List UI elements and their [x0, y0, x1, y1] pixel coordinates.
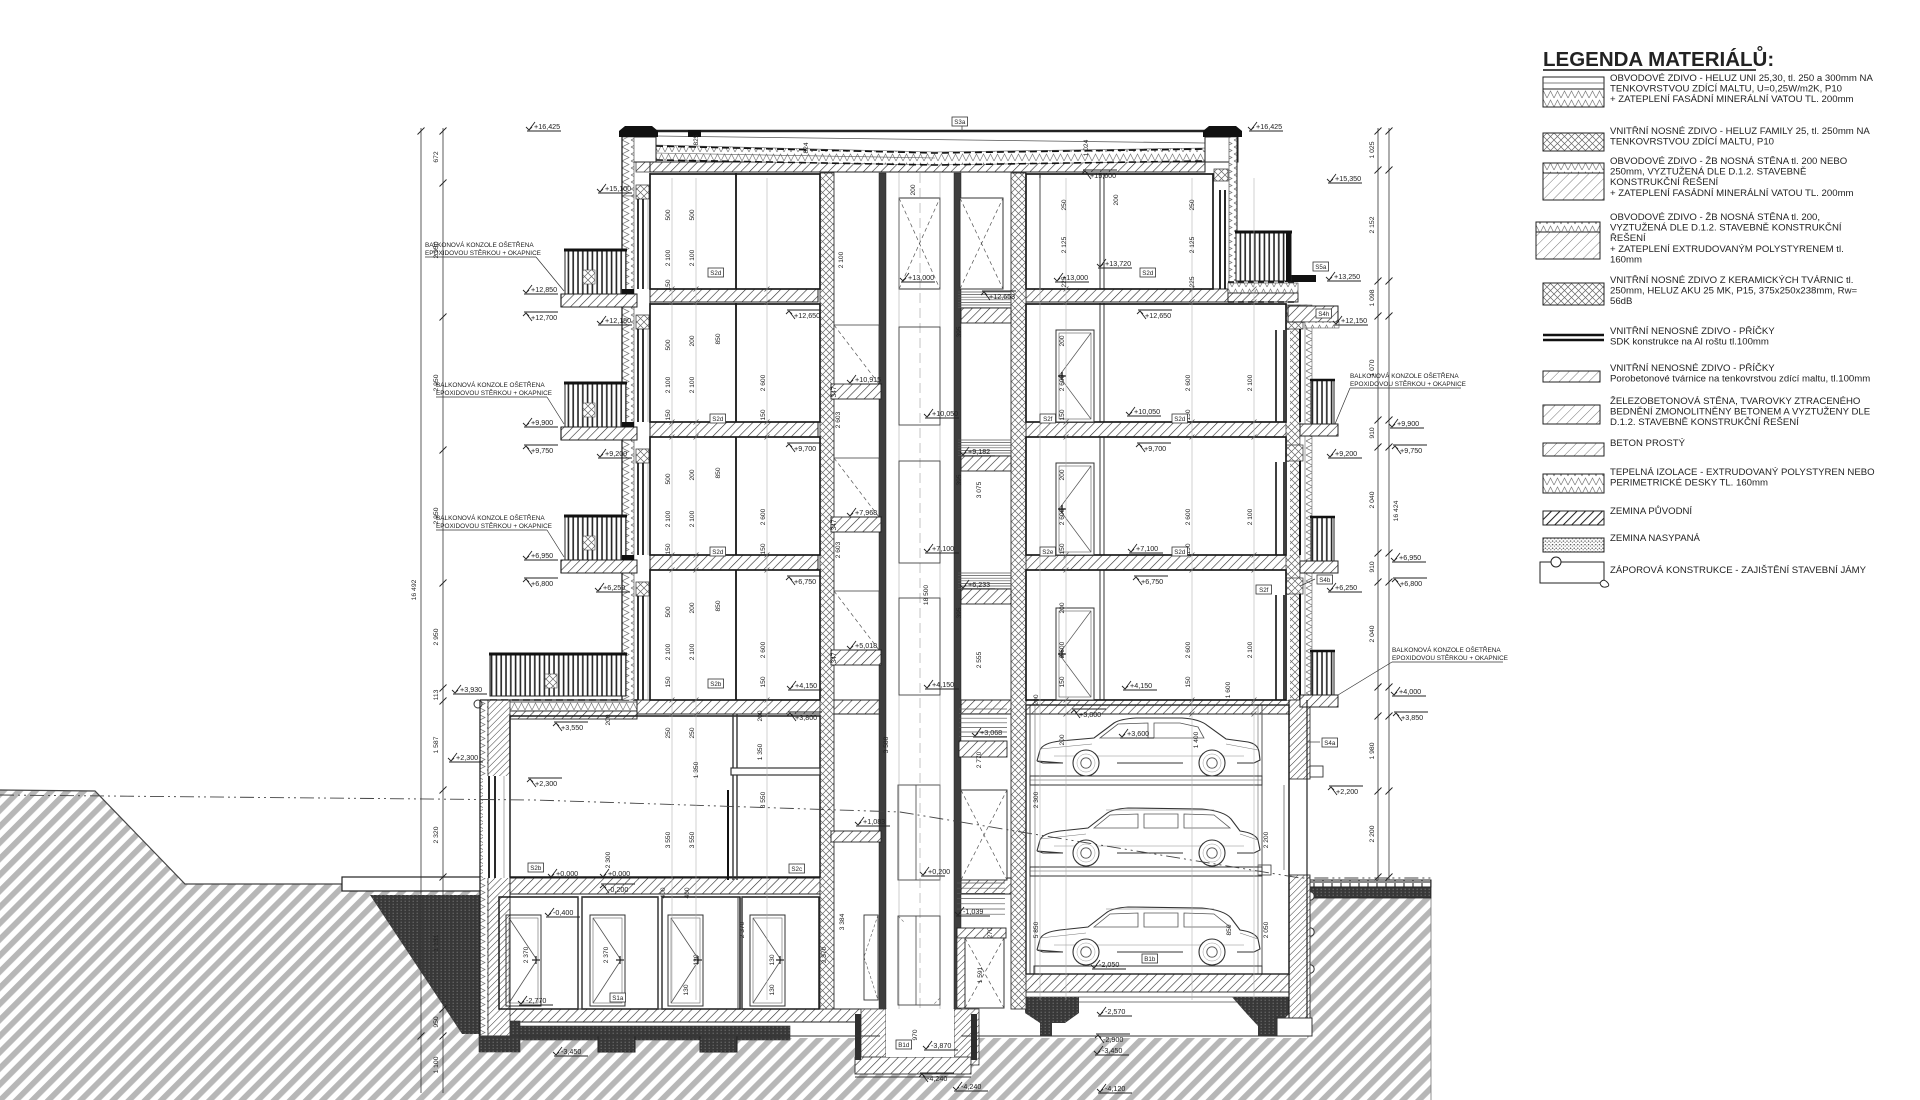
svg-text:400: 400	[660, 887, 667, 898]
svg-text:1 098: 1 098	[1369, 289, 1376, 306]
svg-text:B1b: B1b	[1144, 956, 1156, 963]
svg-text:-0,400: -0,400	[553, 908, 573, 917]
svg-text:850: 850	[715, 467, 722, 478]
svg-text:+6,950: +6,950	[531, 551, 553, 560]
svg-text:+6,250: +6,250	[603, 583, 625, 592]
svg-text:VNITŘNÍ NENOSNÉ ZDIVO - PŘÍČKY: VNITŘNÍ NENOSNÉ ZDIVO - PŘÍČKY	[1610, 326, 1775, 337]
svg-text:2 100: 2 100	[665, 249, 672, 266]
svg-text:+12,150: +12,150	[1341, 316, 1367, 325]
svg-text:200: 200	[910, 184, 917, 195]
svg-text:+4,150: +4,150	[932, 680, 954, 689]
svg-text:S4h: S4h	[1318, 311, 1330, 318]
svg-text:2 370: 2 370	[739, 921, 746, 938]
svg-text:EPOXIDOVOU STĚRKOU + OKAPNICE: EPOXIDOVOU STĚRKOU + OKAPNICE	[1392, 653, 1508, 662]
svg-text:2 300: 2 300	[1033, 791, 1040, 808]
svg-text:S2c: S2c	[791, 866, 802, 873]
svg-text:+15,350: +15,350	[1335, 174, 1361, 183]
svg-text:+6,233: +6,233	[968, 580, 990, 589]
svg-text:BALKONOVÁ KONZOLE OŠETŘENA: BALKONOVÁ KONZOLE OŠETŘENA	[1350, 371, 1459, 380]
svg-text:200: 200	[689, 602, 696, 613]
svg-text:2 100: 2 100	[689, 510, 696, 527]
svg-text:270: 270	[987, 927, 994, 938]
svg-text:3 550: 3 550	[665, 831, 672, 848]
svg-text:S2d: S2d	[712, 549, 724, 556]
svg-text:+0,200: +0,200	[928, 867, 950, 876]
svg-text:+3,930: +3,930	[460, 685, 482, 694]
svg-text:OBVODOVÉ ZDIVO - ŽB NOSNÁ STĚN: OBVODOVÉ ZDIVO - ŽB NOSNÁ STĚNA tl. 200,	[1610, 212, 1820, 223]
svg-text:395: 395	[956, 474, 963, 485]
svg-text:OBVODOVÉ ZDIVO - HELUZ UNI 25,: OBVODOVÉ ZDIVO - HELUZ UNI 25,30, tl. 25…	[1610, 73, 1873, 84]
svg-text:+12,850: +12,850	[531, 285, 557, 294]
svg-text:+ ZATEPLENÍ FASÁDNÍ MINERÁLNÍ: + ZATEPLENÍ FASÁDNÍ MINERÁLNÍ VATOU TL. …	[1610, 188, 1854, 199]
svg-text:160mm: 160mm	[1610, 254, 1642, 265]
svg-text:500: 500	[665, 606, 672, 617]
svg-text:850: 850	[1226, 924, 1233, 935]
svg-text:2 600: 2 600	[1059, 508, 1066, 525]
svg-text:850: 850	[715, 600, 722, 611]
svg-text:BEDNĚNÍ ZMONOLITNĚNY BETONEM A: BEDNĚNÍ ZMONOLITNĚNY BETONEM A VYZTUŽENY…	[1610, 407, 1870, 418]
svg-text:ŘEŠENÍ: ŘEŠENÍ	[1610, 233, 1646, 244]
svg-text:S2d: S2d	[1174, 416, 1186, 423]
svg-text:D.1.2. STAVEBNĚ KONSTRUKČNÍ ŘE: D.1.2. STAVEBNĚ KONSTRUKČNÍ ŘEŠENÍ	[1610, 417, 1799, 428]
svg-text:+9,750: +9,750	[1400, 446, 1422, 455]
svg-text:2 600: 2 600	[760, 641, 767, 658]
svg-text:S4b: S4b	[1319, 577, 1331, 584]
svg-text:3 550: 3 550	[760, 791, 767, 808]
svg-text:+12,653: +12,653	[989, 292, 1015, 301]
svg-text:+13,000: +13,000	[1062, 273, 1088, 282]
svg-text:+15,100: +15,100	[605, 184, 631, 193]
svg-text:+13,720: +13,720	[1105, 259, 1131, 268]
svg-text:+5,018: +5,018	[855, 641, 877, 650]
svg-text:-0,200: -0,200	[608, 885, 628, 894]
svg-text:+16,425: +16,425	[1256, 122, 1282, 131]
svg-text:2 770: 2 770	[976, 751, 983, 768]
svg-text:LEGENDA MATERIÁLŮ:: LEGENDA MATERIÁLŮ:	[1543, 45, 1774, 71]
svg-text:BALKONOVÁ KONZOLE OŠETŘENA: BALKONOVÁ KONZOLE OŠETŘENA	[436, 380, 545, 389]
svg-text:3 075: 3 075	[976, 481, 983, 498]
svg-text:150: 150	[1059, 676, 1066, 687]
svg-text:2 125: 2 125	[1189, 236, 1196, 253]
svg-text:200: 200	[1033, 694, 1040, 705]
svg-text:+1,083: +1,083	[863, 817, 885, 826]
svg-text:2 200: 2 200	[1263, 831, 1270, 848]
svg-text:+6,750: +6,750	[794, 577, 816, 586]
svg-text:EPOXIDOVOU STĚRKOU + OKAPNICE: EPOXIDOVOU STĚRKOU + OKAPNICE	[425, 248, 541, 257]
svg-text:3 384: 3 384	[839, 913, 846, 930]
svg-text:2 300: 2 300	[605, 851, 612, 868]
svg-text:KONSTRUKČNÍ ŘEŠENÍ: KONSTRUKČNÍ ŘEŠENÍ	[1610, 177, 1719, 188]
svg-text:+13,000: +13,000	[908, 273, 934, 282]
svg-text:150: 150	[665, 676, 672, 687]
svg-text:2 600: 2 600	[760, 374, 767, 391]
svg-text:TEPELNÁ IZOLACE - EXTRUDOVANÝ: TEPELNÁ IZOLACE - EXTRUDOVANÝ POLYSTYREN…	[1610, 467, 1875, 478]
svg-text:200: 200	[1113, 194, 1120, 205]
svg-text:S4a: S4a	[1324, 740, 1336, 747]
svg-text:113: 113	[433, 689, 440, 700]
svg-text:2 950: 2 950	[433, 628, 440, 645]
svg-text:+3,068: +3,068	[980, 728, 1002, 737]
svg-text:+12,700: +12,700	[531, 313, 557, 322]
svg-text:150: 150	[1059, 543, 1066, 554]
svg-text:500: 500	[665, 209, 672, 220]
svg-text:250: 250	[689, 727, 696, 738]
svg-text:200: 200	[689, 469, 696, 480]
svg-text:2 100: 2 100	[1247, 374, 1254, 391]
svg-text:ZEMINA PŮVODNÍ: ZEMINA PŮVODNÍ	[1610, 505, 1692, 517]
svg-text:-4,240: -4,240	[927, 1074, 947, 1083]
svg-text:1 980: 1 980	[1369, 742, 1376, 759]
svg-text:200: 200	[1059, 734, 1066, 745]
svg-text:VNITŘNÍ NOSNÉ ZDIVO - HELUZ FA: VNITŘNÍ NOSNÉ ZDIVO - HELUZ FAMILY 25, t…	[1610, 126, 1870, 137]
svg-text:+7,100: +7,100	[1136, 544, 1158, 553]
svg-text:130: 130	[769, 954, 776, 965]
svg-text:S5a: S5a	[1315, 264, 1327, 271]
svg-text:2 600: 2 600	[1185, 641, 1192, 658]
svg-text:150: 150	[1059, 409, 1066, 420]
svg-text:1 350: 1 350	[757, 743, 764, 760]
svg-text:200: 200	[1059, 602, 1066, 613]
svg-text:2 100: 2 100	[665, 376, 672, 393]
svg-text:BALKONOVÁ KONZOLE OŠETŘENA: BALKONOVÁ KONZOLE OŠETŘENA	[425, 240, 534, 249]
svg-text:2 603: 2 603	[835, 411, 842, 428]
svg-text:+10,915: +10,915	[855, 375, 881, 384]
svg-text:+ ZATEPLENÍ EXTRUDOVANÝM POLYS: + ZATEPLENÍ EXTRUDOVANÝM POLYSTYRENEM tl…	[1610, 244, 1844, 255]
svg-text:+3,850: +3,850	[1401, 713, 1423, 722]
svg-text:1 591: 1 591	[977, 966, 984, 983]
svg-text:EPOXIDOVOU STĚRKOU + OKAPNICE: EPOXIDOVOU STĚRKOU + OKAPNICE	[1350, 379, 1466, 388]
svg-text:2 370: 2 370	[603, 946, 610, 963]
svg-text:S2d: S2d	[1174, 549, 1186, 556]
svg-text:+6,950: +6,950	[1399, 553, 1421, 562]
svg-text:BALKONOVÁ KONZOLE OŠETŘENA: BALKONOVÁ KONZOLE OŠETŘENA	[436, 513, 545, 522]
svg-text:+0,000: +0,000	[608, 869, 630, 878]
svg-text:+10,050: +10,050	[932, 409, 958, 418]
svg-text:1 131: 1 131	[433, 934, 440, 951]
svg-text:S2d: S2d	[1142, 270, 1154, 277]
svg-text:3 588: 3 588	[883, 736, 890, 753]
svg-text:400: 400	[684, 887, 691, 898]
svg-text:+9,700: +9,700	[1144, 444, 1166, 453]
svg-text:+3,800: +3,800	[1079, 710, 1101, 719]
svg-text:+ ZATEPLENÍ FASÁDNÍ MINERÁLNÍ: + ZATEPLENÍ FASÁDNÍ MINERÁLNÍ VATOU TL. …	[1610, 94, 1854, 105]
svg-text:850: 850	[715, 333, 722, 344]
svg-text:+6,800: +6,800	[1400, 579, 1422, 588]
svg-text:2 555: 2 555	[976, 651, 983, 668]
svg-text:2 040: 2 040	[1369, 491, 1376, 508]
svg-text:150: 150	[665, 543, 672, 554]
svg-text:500: 500	[665, 339, 672, 350]
svg-text:S2d: S2d	[712, 416, 724, 423]
svg-text:250mm, HELUZ AKU 25 MK, P15, 3: 250mm, HELUZ AKU 25 MK, P15, 375x250x238…	[1610, 286, 1858, 297]
svg-text:BALKONOVÁ KONZOLE OŠETŘENA: BALKONOVÁ KONZOLE OŠETŘENA	[1392, 645, 1501, 654]
svg-text:-2,900: -2,900	[1103, 1035, 1123, 1044]
svg-text:500: 500	[665, 473, 672, 484]
svg-text:2 320: 2 320	[433, 826, 440, 843]
svg-text:EPOXIDOVOU STĚRKOU + OKAPNICE: EPOXIDOVOU STĚRKOU + OKAPNICE	[436, 521, 552, 530]
svg-text:395: 395	[956, 326, 963, 337]
svg-text:1 600: 1 600	[1225, 681, 1232, 698]
svg-text:2 100: 2 100	[1247, 508, 1254, 525]
svg-text:130: 130	[693, 954, 700, 965]
svg-text:56dB: 56dB	[1610, 296, 1632, 307]
svg-text:150: 150	[760, 543, 767, 554]
svg-text:+9,182: +9,182	[968, 447, 990, 456]
svg-text:+7,968: +7,968	[855, 508, 877, 517]
svg-text:+6,250: +6,250	[1335, 583, 1357, 592]
svg-text:ZEMINA NASYPANÁ: ZEMINA NASYPANÁ	[1610, 533, 1701, 544]
svg-text:910: 910	[1369, 427, 1376, 439]
svg-text:250mm, VYZTUŽENÁ DLE D.1.2. ST: 250mm, VYZTUŽENÁ DLE D.1.2. STAVEBNĚ	[1610, 167, 1806, 178]
svg-text:S2f: S2f	[1259, 587, 1269, 594]
svg-text:BETON PROSTÝ: BETON PROSTÝ	[1610, 438, 1686, 449]
svg-text:+6,800: +6,800	[531, 579, 553, 588]
svg-text:+2,300: +2,300	[456, 753, 478, 762]
svg-text:VNITŘNÍ NENOSNÉ ZDIVO - PŘÍČKY: VNITŘNÍ NENOSNÉ ZDIVO - PŘÍČKY	[1610, 363, 1775, 374]
svg-text:-1,039: -1,039	[963, 907, 983, 916]
svg-text:SDK konstrukce na Al roštu tl.: SDK konstrukce na Al roštu tl.100mm	[1610, 337, 1769, 348]
svg-text:2 600: 2 600	[1185, 374, 1192, 391]
svg-text:950: 950	[433, 1016, 440, 1028]
svg-text:2 600: 2 600	[1059, 641, 1066, 658]
svg-text:-2,570: -2,570	[1105, 1007, 1125, 1016]
svg-text:-3,450: -3,450	[1102, 1046, 1122, 1055]
svg-text:347: 347	[831, 386, 838, 397]
svg-text:225: 225	[1189, 276, 1196, 287]
svg-text:+2,300: +2,300	[535, 779, 557, 788]
svg-text:OBVODOVÉ ZDIVO - ŽB NOSNÁ STĚN: OBVODOVÉ ZDIVO - ŽB NOSNÁ STĚNA tl. 200 …	[1610, 156, 1847, 167]
svg-text:150: 150	[760, 676, 767, 687]
svg-text:395: 395	[956, 607, 963, 618]
svg-text:130: 130	[683, 984, 690, 995]
svg-text:200: 200	[1059, 335, 1066, 346]
svg-text:250: 250	[665, 727, 672, 738]
svg-text:200: 200	[1059, 469, 1066, 480]
svg-text:200: 200	[605, 714, 612, 725]
svg-text:-4,240: -4,240	[961, 1082, 981, 1091]
svg-text:1 587: 1 587	[433, 736, 440, 753]
svg-text:2 040: 2 040	[1369, 625, 1376, 642]
svg-text:825: 825	[693, 134, 700, 145]
svg-text:+9,900: +9,900	[531, 418, 553, 427]
svg-text:1 350: 1 350	[693, 761, 700, 778]
svg-text:2 600: 2 600	[760, 508, 767, 525]
svg-text:970: 970	[912, 1029, 919, 1040]
svg-text:2 125: 2 125	[1061, 236, 1068, 253]
svg-text:+3,550: +3,550	[561, 723, 583, 732]
svg-text:TENKOVRSTVOU ZDÍCÍ MALTU, U=0,: TENKOVRSTVOU ZDÍCÍ MALTU, U=0,25W/m2K, P…	[1610, 84, 1842, 95]
svg-text:2 603: 2 603	[835, 541, 842, 558]
svg-text:+3,800: +3,800	[795, 713, 817, 722]
svg-text:-2,770: -2,770	[526, 996, 546, 1005]
svg-text:500: 500	[689, 209, 696, 220]
svg-text:16 492: 16 492	[411, 579, 418, 600]
svg-text:+10,050: +10,050	[1134, 407, 1160, 416]
svg-text:-2,050: -2,050	[1099, 960, 1119, 969]
svg-text:+12,650: +12,650	[1145, 311, 1171, 320]
svg-text:+9,200: +9,200	[605, 449, 627, 458]
svg-text:+12,150: +12,150	[605, 316, 631, 325]
svg-text:200: 200	[757, 710, 764, 721]
svg-text:1 025: 1 025	[1369, 141, 1376, 158]
svg-text:+9,900: +9,900	[1397, 419, 1419, 428]
svg-text:18 500: 18 500	[923, 585, 930, 606]
svg-text:250: 250	[1061, 199, 1068, 210]
svg-text:+7,100: +7,100	[932, 544, 954, 553]
svg-text:TENKOVRSTVOU ZDÍCÍ MALTU, P10: TENKOVRSTVOU ZDÍCÍ MALTU, P10	[1610, 137, 1774, 148]
svg-text:PERIMETRICKÉ DESKY TL. 160mm: PERIMETRICKÉ DESKY TL. 160mm	[1610, 478, 1768, 489]
svg-text:+2,200: +2,200	[1336, 787, 1358, 796]
svg-text:ŽELEZOBETONOVÁ STĚNA, TVAROVKY: ŽELEZOBETONOVÁ STĚNA, TVAROVKY ZTRACENÉH…	[1610, 396, 1860, 407]
svg-text:672: 672	[433, 151, 440, 163]
svg-text:+9,700: +9,700	[794, 444, 816, 453]
svg-text:+9,750: +9,750	[531, 446, 553, 455]
svg-text:+12,650: +12,650	[794, 311, 820, 320]
svg-text:2 100: 2 100	[838, 251, 845, 268]
svg-text:+3,600: +3,600	[1127, 729, 1149, 738]
svg-text:S2f: S2f	[1043, 416, 1053, 423]
svg-text:EPOXIDOVOU STĚRKOU + OKAPNICE: EPOXIDOVOU STĚRKOU + OKAPNICE	[436, 388, 552, 397]
svg-text:347: 347	[831, 652, 838, 663]
svg-text:-3,450: -3,450	[561, 1047, 581, 1056]
svg-text:130: 130	[769, 984, 776, 995]
svg-text:S3a: S3a	[954, 119, 966, 126]
svg-text:910: 910	[1369, 561, 1376, 573]
svg-text:2 370: 2 370	[523, 946, 530, 963]
svg-text:VYZTUŽENÁ DLE D.1.2. STAVEBNĚ: VYZTUŽENÁ DLE D.1.2. STAVEBNĚ KONSTRUKČN…	[1610, 223, 1842, 234]
svg-text:1 024: 1 024	[1083, 139, 1090, 156]
svg-text:+0,000: +0,000	[556, 869, 578, 878]
svg-text:+16,425: +16,425	[534, 122, 560, 131]
svg-text:150: 150	[665, 279, 672, 290]
svg-text:-4,120: -4,120	[1105, 1084, 1125, 1093]
svg-text:150: 150	[1185, 676, 1192, 687]
svg-text:5 850: 5 850	[1033, 921, 1040, 938]
svg-text:S2e: S2e	[1042, 549, 1054, 556]
svg-text:2 100: 2 100	[689, 376, 696, 393]
svg-text:200: 200	[689, 335, 696, 346]
svg-text:+13,250: +13,250	[1334, 272, 1360, 281]
svg-text:824: 824	[803, 142, 810, 153]
svg-text:3 550: 3 550	[689, 831, 696, 848]
svg-text:16 424: 16 424	[1393, 500, 1400, 521]
svg-text:2 100: 2 100	[689, 249, 696, 266]
svg-text:2 370: 2 370	[821, 946, 828, 963]
svg-text:2 050: 2 050	[1263, 921, 1270, 938]
svg-text:2 100: 2 100	[689, 643, 696, 660]
svg-text:2 100: 2 100	[665, 510, 672, 527]
svg-text:S1a: S1a	[612, 995, 624, 1002]
svg-text:2 600: 2 600	[1185, 508, 1192, 525]
svg-text:150: 150	[665, 409, 672, 420]
svg-text:S2d: S2d	[710, 270, 722, 277]
svg-text:VNITŘNÍ NOSNÉ ZDIVO Z KERAMICK: VNITŘNÍ NOSNÉ ZDIVO Z KERAMICKÝCH TVÁRNI…	[1610, 275, 1853, 286]
svg-text:+6,750: +6,750	[1141, 577, 1163, 586]
svg-text:2 100: 2 100	[1247, 641, 1254, 658]
svg-text:S2b: S2b	[710, 681, 722, 688]
svg-text:+4,000: +4,000	[1399, 687, 1421, 696]
svg-text:+15,600: +15,600	[1090, 171, 1116, 180]
svg-text:S2b: S2b	[530, 865, 542, 872]
svg-text:+9,200: +9,200	[1335, 449, 1357, 458]
svg-text:-3,870: -3,870	[931, 1041, 951, 1050]
svg-text:2 152: 2 152	[1369, 216, 1376, 233]
svg-text:B1d: B1d	[898, 1042, 910, 1049]
svg-text:250: 250	[1189, 199, 1196, 210]
svg-text:2 600: 2 600	[1059, 374, 1066, 391]
svg-text:2 200: 2 200	[1369, 825, 1376, 842]
svg-text:1 400: 1 400	[1193, 731, 1200, 748]
svg-text:ZÁPOROVÁ KONSTRUKCE - ZAJIŠTĚN: ZÁPOROVÁ KONSTRUKCE - ZAJIŠTĚNÍ STAVEBNÍ…	[1610, 565, 1867, 576]
svg-text:+4,150: +4,150	[795, 681, 817, 690]
svg-text:150: 150	[760, 409, 767, 420]
svg-text:Porobetonové tvárnice na tenko: Porobetonové tvárnice na tenkovrstvou zd…	[1610, 374, 1870, 385]
svg-text:1 100: 1 100	[433, 1056, 440, 1073]
svg-text:347: 347	[831, 519, 838, 530]
svg-text:+4,150: +4,150	[1130, 681, 1152, 690]
svg-text:2 100: 2 100	[665, 643, 672, 660]
